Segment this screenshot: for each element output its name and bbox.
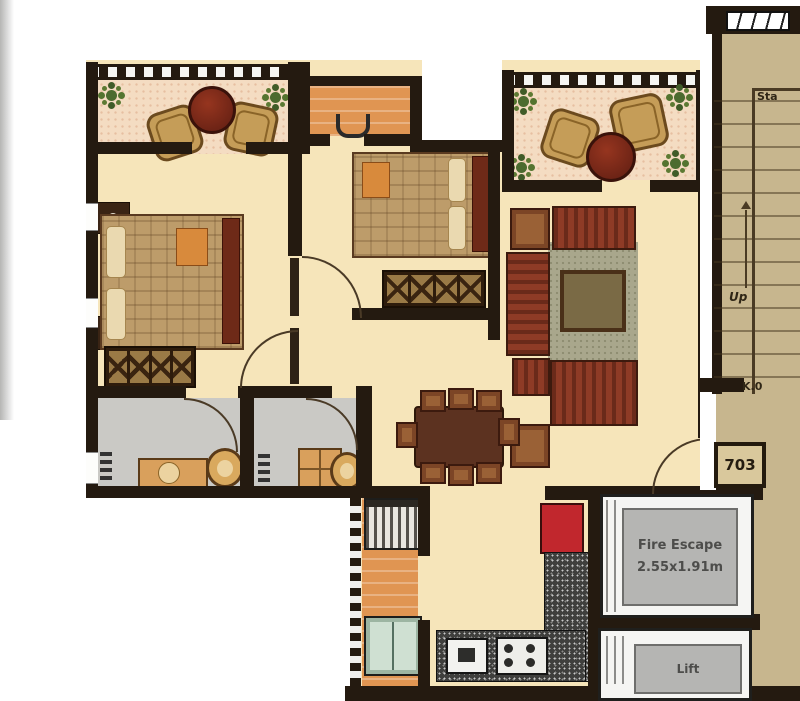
utility-railing [350,498,361,688]
sofa-stool [512,358,550,396]
shower-icon [100,452,112,484]
wall-outer-left [86,62,98,498]
round-table [188,86,236,134]
bottom-left-outside [0,498,350,701]
kitchen-sink-icon [446,638,488,674]
lobby-gap [700,34,712,394]
plant-icon [516,162,527,173]
washbasin-icon [158,462,180,484]
wall [246,142,302,154]
wall [502,180,602,192]
wall [86,386,186,398]
blanket [176,228,208,266]
stair-door-icon [726,11,790,31]
fire-escape-stripes [606,500,622,612]
stove-icon [496,637,548,675]
wall [502,70,514,192]
fire-escape-label: Fire Escape [638,535,722,557]
dining-chair [396,422,418,448]
up-arrow-icon [741,201,751,209]
bed-footboard [222,218,240,344]
balcony-left-railing [86,64,302,80]
shower-icon [258,454,270,486]
wall [418,498,430,556]
window-left-1 [86,203,98,231]
wardrobe [382,270,486,308]
round-table [586,132,636,182]
sofa-left [506,252,550,356]
plant-icon [670,158,681,169]
landing-wall [700,378,744,392]
wall [356,386,372,498]
side-table [510,208,550,250]
plant-icon [518,96,529,107]
wardrobe [104,346,196,388]
plant-icon [674,92,685,103]
top-notch-outside [422,56,502,140]
pillow [106,226,126,278]
unit-number-plate: 703 [714,442,766,488]
landing-label: K.0 [742,380,762,393]
wall [288,154,302,256]
blanket [362,162,390,198]
pillow [448,158,466,202]
wall [86,142,192,154]
wall [352,308,500,320]
dining-chair [476,462,502,484]
lift-stripes [606,636,630,684]
fridge-icon [540,503,584,554]
wall [488,140,500,340]
staircase-label: Sta [757,90,778,103]
sofa-bottom [550,360,638,426]
dining-table [414,406,504,468]
floor-plan: Sta Up K.0 703 Fire Escape 2.55x1.91m Li… [0,0,800,701]
balcony-right-railing [502,72,710,88]
dining-chair [420,390,446,412]
utility-sink-icon [364,616,422,676]
fire-escape-size-label: 2.55x1.91m [637,557,723,579]
dining-chair [448,388,474,410]
window-left-3 [86,452,98,484]
lift-inner: Lift [634,644,742,694]
lift-label: Lift [677,662,700,676]
pillow [448,206,466,250]
dining-chair [420,462,446,484]
stair-inner-wall [752,88,755,394]
wall [300,134,330,146]
up-arrow-line [745,210,747,288]
wall [300,76,422,86]
scan-edge-artifact [0,0,14,420]
up-label: Up [729,290,747,304]
dining-chair [498,418,520,446]
plant-icon [270,92,281,103]
window-left-2 [86,298,98,328]
door-leaf [290,258,299,316]
wall [418,620,430,690]
wall [240,386,254,498]
coffee-table [560,270,626,332]
pillow [106,288,126,340]
dining-chair [476,390,502,412]
washing-machine-icon [364,498,420,550]
toilet-icon [206,448,244,488]
fire-escape-inner: Fire Escape 2.55x1.91m [622,508,738,606]
dining-chair [448,464,474,486]
sofa-top [552,206,636,250]
plant-icon [106,90,117,101]
stair-treads [714,100,800,394]
wall [86,486,430,498]
